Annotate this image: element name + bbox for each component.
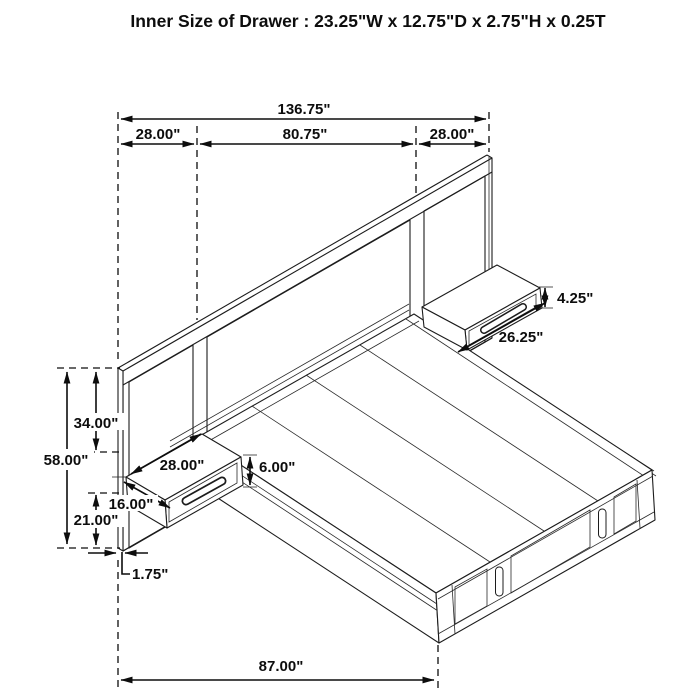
- dim-lower-height-label: 21.00": [74, 512, 119, 529]
- dim-total-width-label: 136.75": [278, 101, 331, 118]
- dim-right-nightstand-height-label: 4.25": [557, 290, 593, 307]
- dim-left-section-label: 28.00": [136, 126, 181, 143]
- foot-drawer-handle-2: [599, 509, 607, 538]
- dim-upper-height-label: 34.00": [74, 415, 119, 432]
- dim-left-nightstand-depth-label: 16.00": [109, 496, 154, 513]
- dim-bed-length-label: 87.00": [259, 658, 304, 675]
- dim-right-nightstand-width-label: 26.25": [499, 329, 544, 346]
- bed-dimension-diagram: Inner Size of Drawer : 23.25"W x 12.75"D…: [0, 0, 700, 700]
- dim-total-height-label: 58.00": [44, 452, 89, 469]
- headboard-top-right-corner: [487, 155, 492, 158]
- foot-drawer-handle-1: [496, 567, 504, 596]
- diagram-title: Inner Size of Drawer : 23.25"W x 12.75"D…: [130, 11, 606, 31]
- dim-left-nightstand-width-label: 28.00": [160, 457, 205, 474]
- dim-thickness-label: 1.75": [132, 566, 168, 583]
- diagram-canvas: Inner Size of Drawer : 23.25"W x 12.75"D…: [0, 0, 700, 700]
- dim-center-section-label: 80.75": [283, 126, 328, 143]
- dim-left-nightstand-height-label: 6.00": [259, 459, 295, 476]
- dim-right-section-label: 28.00": [430, 126, 475, 143]
- dim-thickness-leader: [122, 552, 130, 574]
